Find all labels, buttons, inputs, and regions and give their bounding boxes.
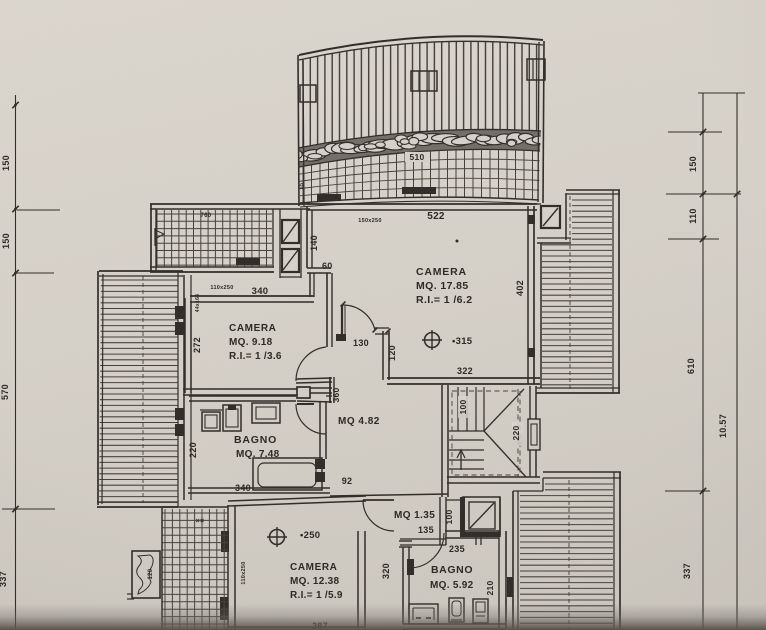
- svg-text:•315: •315: [452, 336, 473, 347]
- svg-text:150: 150: [688, 156, 698, 172]
- svg-text:570: 570: [0, 384, 10, 400]
- svg-text:55: 55: [299, 183, 305, 190]
- svg-text:CAMERA: CAMERA: [416, 266, 467, 278]
- svg-text:150: 150: [1, 233, 11, 249]
- svg-text:220: 220: [511, 425, 521, 440]
- svg-text:760: 760: [201, 213, 212, 219]
- svg-text:322: 322: [457, 366, 473, 376]
- svg-text:R.I.= 1 /5.9: R.I.= 1 /5.9: [290, 590, 343, 601]
- svg-text:130: 130: [353, 338, 369, 348]
- svg-text:150: 150: [1, 155, 11, 171]
- svg-text:220: 220: [188, 442, 198, 458]
- svg-text:CAMERA: CAMERA: [229, 323, 277, 334]
- svg-text:MQ. 5.92: MQ. 5.92: [430, 580, 474, 591]
- svg-text:MQ. 17.85: MQ. 17.85: [416, 280, 469, 292]
- svg-text:R.I.= 1 /3.6: R.I.= 1 /3.6: [229, 351, 282, 362]
- svg-text:•250: •250: [300, 530, 320, 541]
- svg-text:320: 320: [381, 563, 391, 579]
- svg-text:BAGNO: BAGNO: [431, 564, 473, 576]
- svg-text:CAMERA: CAMERA: [290, 562, 338, 573]
- svg-text:××: ××: [196, 518, 205, 525]
- svg-text:10.57: 10.57: [718, 414, 728, 438]
- svg-text:337: 337: [682, 563, 692, 579]
- svg-text:402: 402: [515, 280, 525, 296]
- svg-text:60: 60: [322, 261, 333, 271]
- svg-text:510: 510: [409, 152, 424, 162]
- svg-text:340: 340: [235, 483, 251, 493]
- svg-text:110x250: 110x250: [210, 285, 233, 291]
- svg-text:337: 337: [0, 571, 8, 587]
- svg-text:MQ. 7.48: MQ. 7.48: [236, 449, 280, 460]
- svg-text:MQ 4.82: MQ 4.82: [338, 416, 380, 427]
- svg-text:BAGNO: BAGNO: [234, 434, 277, 446]
- svg-text:92: 92: [342, 476, 353, 486]
- svg-text:360: 360: [331, 387, 341, 402]
- svg-text:110x250: 110x250: [241, 561, 247, 584]
- svg-text:120: 120: [387, 345, 397, 361]
- svg-text:522: 522: [427, 211, 445, 222]
- svg-text:R.I.= 1 /6.2: R.I.= 1 /6.2: [416, 294, 472, 306]
- svg-text:272: 272: [192, 337, 202, 353]
- svg-text:340: 340: [252, 286, 269, 297]
- svg-text:235: 235: [449, 544, 465, 554]
- svg-text:610: 610: [686, 358, 696, 374]
- svg-text:44x164: 44x164: [195, 294, 201, 313]
- svg-text:120: 120: [148, 568, 154, 579]
- svg-text:110: 110: [688, 208, 698, 223]
- svg-text:MQ. 9.18: MQ. 9.18: [229, 337, 273, 348]
- svg-text:100: 100: [444, 509, 454, 524]
- svg-text:MQ 1.35: MQ 1.35: [394, 510, 435, 521]
- svg-text:100: 100: [458, 399, 468, 414]
- svg-text:140: 140: [309, 235, 319, 251]
- svg-text:210: 210: [485, 580, 495, 595]
- svg-text:MQ. 12.38: MQ. 12.38: [290, 576, 340, 587]
- svg-text:135: 135: [418, 525, 434, 535]
- svg-text:150x250: 150x250: [358, 218, 382, 224]
